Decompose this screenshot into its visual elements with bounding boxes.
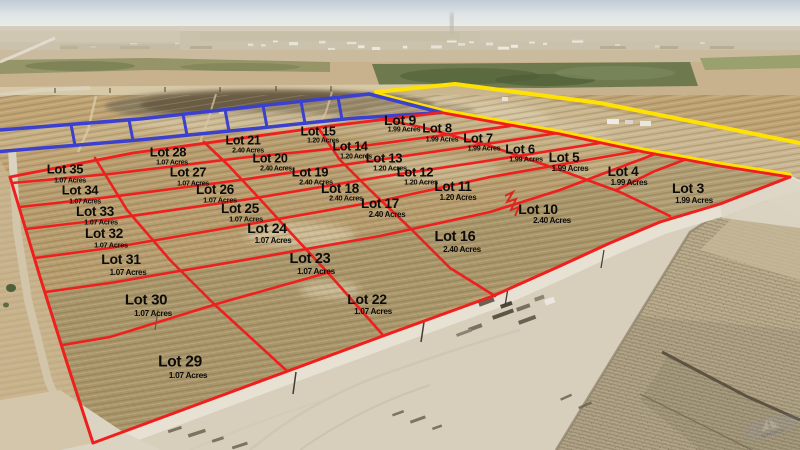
svg-text:Lot 31: Lot 31 (101, 251, 141, 267)
svg-text:1.07 Acres: 1.07 Acres (134, 309, 172, 318)
svg-text:Lot 8: Lot 8 (422, 121, 452, 136)
svg-text:1.99 Acres: 1.99 Acres (552, 164, 590, 173)
svg-text:2.40 Acres: 2.40 Acres (329, 194, 363, 203)
svg-text:Lot 30: Lot 30 (125, 291, 167, 308)
svg-text:Lot 20: Lot 20 (252, 152, 287, 166)
svg-text:1.99 Acres: 1.99 Acres (509, 155, 543, 164)
svg-text:1.07 Acres: 1.07 Acres (255, 236, 293, 245)
svg-text:1.99 Acres: 1.99 Acres (675, 196, 713, 205)
svg-text:Lot 26: Lot 26 (196, 182, 235, 197)
svg-text:1.99 Acres: 1.99 Acres (388, 125, 421, 134)
svg-text:1.07 Acres: 1.07 Acres (169, 370, 208, 380)
svg-text:Lot 17: Lot 17 (361, 196, 399, 211)
svg-text:1.07 Acres: 1.07 Acres (354, 307, 392, 316)
svg-text:2.40 Acres: 2.40 Acres (443, 245, 481, 254)
svg-text:Lot 33: Lot 33 (76, 204, 115, 219)
svg-text:Lot 14: Lot 14 (332, 140, 367, 154)
svg-text:Lot 22: Lot 22 (347, 291, 387, 307)
svg-text:Lot 34: Lot 34 (62, 183, 100, 198)
svg-text:1.07 Acres: 1.07 Acres (94, 241, 128, 250)
svg-text:1.99 Acres: 1.99 Acres (426, 135, 459, 144)
svg-text:Lot 23: Lot 23 (290, 251, 331, 267)
svg-text:Lot 10: Lot 10 (518, 201, 558, 217)
svg-text:Lot 5: Lot 5 (549, 150, 581, 165)
svg-text:Lot 35: Lot 35 (47, 162, 84, 177)
svg-text:Lot 27: Lot 27 (170, 165, 207, 180)
svg-text:Lot 4: Lot 4 (608, 164, 640, 179)
svg-text:1.07 Acres: 1.07 Acres (297, 267, 335, 276)
svg-text:Lot 11: Lot 11 (434, 179, 472, 194)
svg-text:1.07 Acres: 1.07 Acres (110, 268, 148, 277)
svg-text:Lot 28: Lot 28 (150, 145, 187, 160)
svg-text:1.99 Acres: 1.99 Acres (468, 144, 501, 153)
svg-text:2.40 Acres: 2.40 Acres (369, 210, 407, 219)
svg-text:2.40 Acres: 2.40 Acres (533, 216, 571, 225)
svg-text:Lot 29: Lot 29 (158, 354, 203, 371)
svg-text:Lot 32: Lot 32 (85, 226, 123, 241)
svg-text:1.20 Acres: 1.20 Acres (404, 178, 438, 187)
svg-text:Lot 21: Lot 21 (225, 134, 260, 148)
svg-text:2.40 Acres: 2.40 Acres (260, 166, 292, 173)
svg-text:Lot 25: Lot 25 (221, 201, 260, 216)
svg-text:1.99 Acres: 1.99 Acres (611, 178, 649, 187)
svg-text:Lot 3: Lot 3 (672, 180, 704, 196)
svg-text:Lot 15: Lot 15 (300, 125, 335, 139)
svg-text:Lot 16: Lot 16 (435, 229, 476, 245)
svg-text:Lot 24: Lot 24 (247, 220, 287, 236)
svg-text:1.20 Acres: 1.20 Acres (440, 193, 478, 202)
